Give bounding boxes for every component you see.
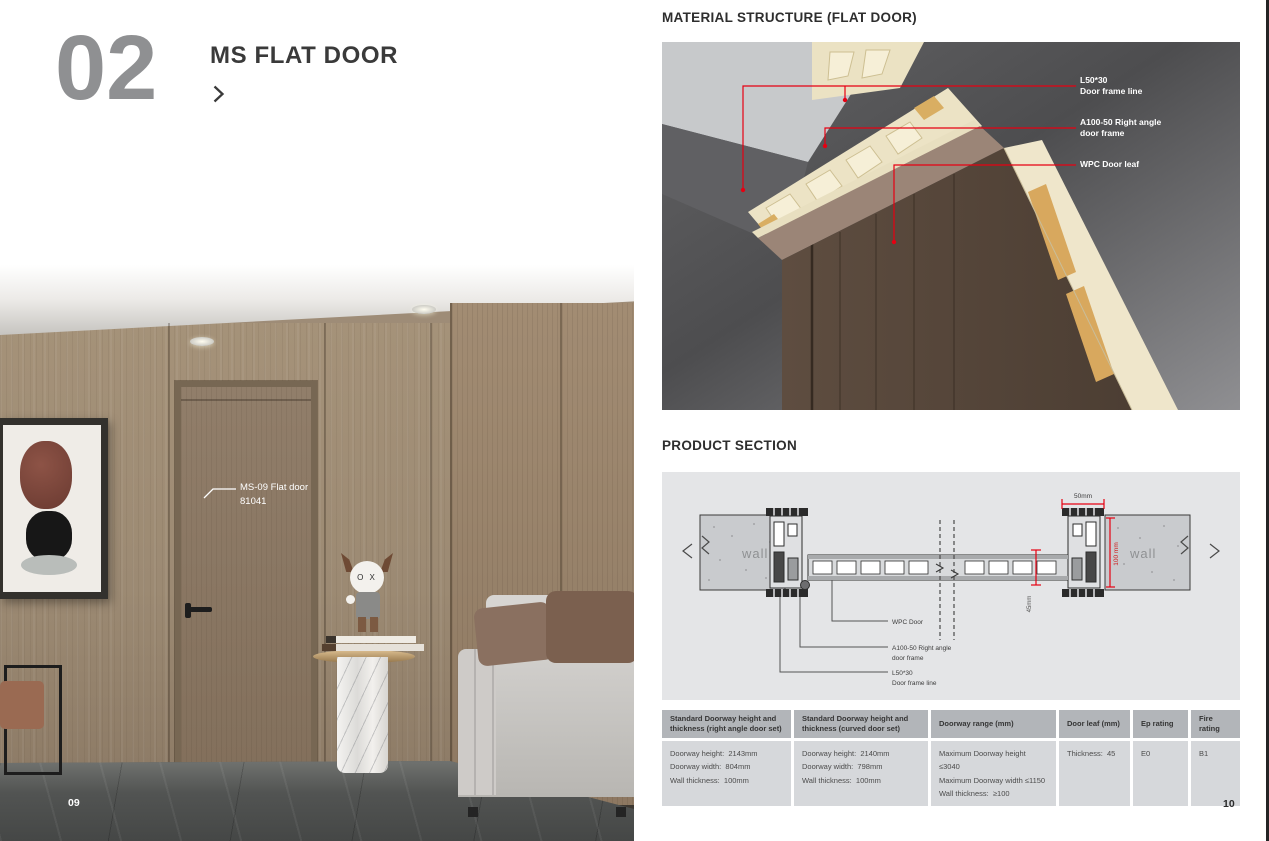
- product-section-diagram: wall wall: [662, 472, 1240, 700]
- wall-panel-seam: [324, 323, 326, 765]
- downlight-icon: [412, 305, 436, 314]
- wall-label-left: wall: [741, 546, 768, 561]
- callout-right-angle-frame: A100-50 Right angle: [892, 645, 952, 652]
- spec-cell: Thickness: 45: [1059, 741, 1130, 806]
- callout-frame-line-2: Door frame line: [892, 680, 937, 687]
- spec-col-header: Standard Doorway height and thickness (r…: [662, 710, 791, 738]
- spec-cell: Maximum Doorway height ≤3040 Maximum Doo…: [931, 741, 1056, 806]
- door-leaf: [181, 387, 311, 765]
- spec-cell: Doorway height: 2140mm Doorway width: 79…: [794, 741, 928, 806]
- door-handle: [185, 607, 212, 612]
- door-cutaway-illustration: [662, 42, 1240, 410]
- product-section-heading: PRODUCT SECTION: [662, 438, 797, 453]
- annotation-wpc-door-leaf: WPC Door leaf: [1080, 159, 1139, 170]
- figurine-hand: [346, 595, 355, 604]
- downlight-icon: [190, 337, 214, 346]
- door-top-rail: [181, 399, 311, 401]
- art-shape-gray: [21, 555, 77, 575]
- chevron-right-icon: [212, 84, 225, 104]
- wall-label-right: wall: [1129, 546, 1156, 561]
- callout-right-angle-frame-2: door frame: [892, 655, 924, 662]
- wall-art: [0, 418, 108, 599]
- art-shape-red: [20, 441, 72, 509]
- door-model-code: 81041: [240, 495, 308, 509]
- sofa: [428, 603, 634, 809]
- book: [322, 644, 424, 651]
- sofa-leg: [468, 807, 478, 817]
- wall-panel-seam: [168, 323, 170, 765]
- dimension-45mm: 45mm: [1027, 596, 1033, 613]
- callout-wpc-door: WPC Door: [892, 619, 924, 626]
- armchair-cushion: [0, 681, 44, 729]
- dimension-50mm: 50mm: [1074, 493, 1092, 500]
- spec-col-header: Standard Doorway height and thickness (c…: [794, 710, 928, 738]
- spec-col-header: Doorway range (mm): [931, 710, 1056, 738]
- spec-col-header: Ep rating: [1133, 710, 1188, 738]
- ox-figurine: O X: [343, 555, 391, 641]
- catalog-spread: 02 MS FLAT DOOR: [0, 0, 1269, 841]
- spec-cell: Doorway height: 2143mm Doorway width: 80…: [662, 741, 791, 806]
- spec-table: Standard Doorway height and thickness (r…: [662, 710, 1240, 806]
- page-left: 02 MS FLAT DOOR: [0, 0, 634, 841]
- door-model-name: MS-09 Flat door: [240, 481, 308, 495]
- door-section-drawing: wall wall: [662, 472, 1240, 700]
- material-structure-heading: MATERIAL STRUCTURE (FLAT DOOR): [662, 10, 917, 25]
- figurine-face: O X: [350, 561, 384, 594]
- figurine-leg: [358, 617, 366, 632]
- page-title: MS FLAT DOOR: [210, 42, 398, 70]
- art-shape-black: [26, 511, 72, 561]
- page-right: MATERIAL STRUCTURE (FLAT DOOR): [662, 0, 1240, 841]
- spec-cell: E0: [1133, 741, 1188, 806]
- spec-cell: B1: [1191, 741, 1240, 806]
- room-photo: O X MS-09 Flat door 81041 09: [0, 265, 634, 841]
- sofa-pillow: [473, 601, 555, 667]
- annotation-right-angle-frame: A100-50 Right angle door frame: [1080, 117, 1161, 139]
- sofa-leg: [616, 807, 626, 817]
- annotation-door-frame-line: L50*30 Door frame line: [1080, 75, 1142, 97]
- figurine-body: [356, 592, 380, 619]
- figurine-leg: [370, 617, 378, 632]
- spec-col-header: Door leaf (mm): [1059, 710, 1130, 738]
- chapter-number: 02: [55, 22, 157, 114]
- side-table-column: [337, 657, 388, 773]
- material-structure-diagram: L50*30 Door frame line A100-50 Right ang…: [662, 42, 1240, 410]
- door-model-label: MS-09 Flat door 81041: [240, 481, 308, 509]
- dimension-100mm: 100 mm: [1113, 542, 1120, 565]
- sofa-pillow: [546, 591, 634, 663]
- flat-door: [175, 381, 317, 765]
- sofa-armrest: [458, 649, 496, 795]
- page-number-left: 09: [68, 797, 80, 809]
- armchair: [0, 665, 62, 777]
- spec-col-header: Fire rating: [1191, 710, 1240, 738]
- callout-frame-line: L50*30: [892, 670, 913, 677]
- page-number-right: 10: [1223, 798, 1235, 810]
